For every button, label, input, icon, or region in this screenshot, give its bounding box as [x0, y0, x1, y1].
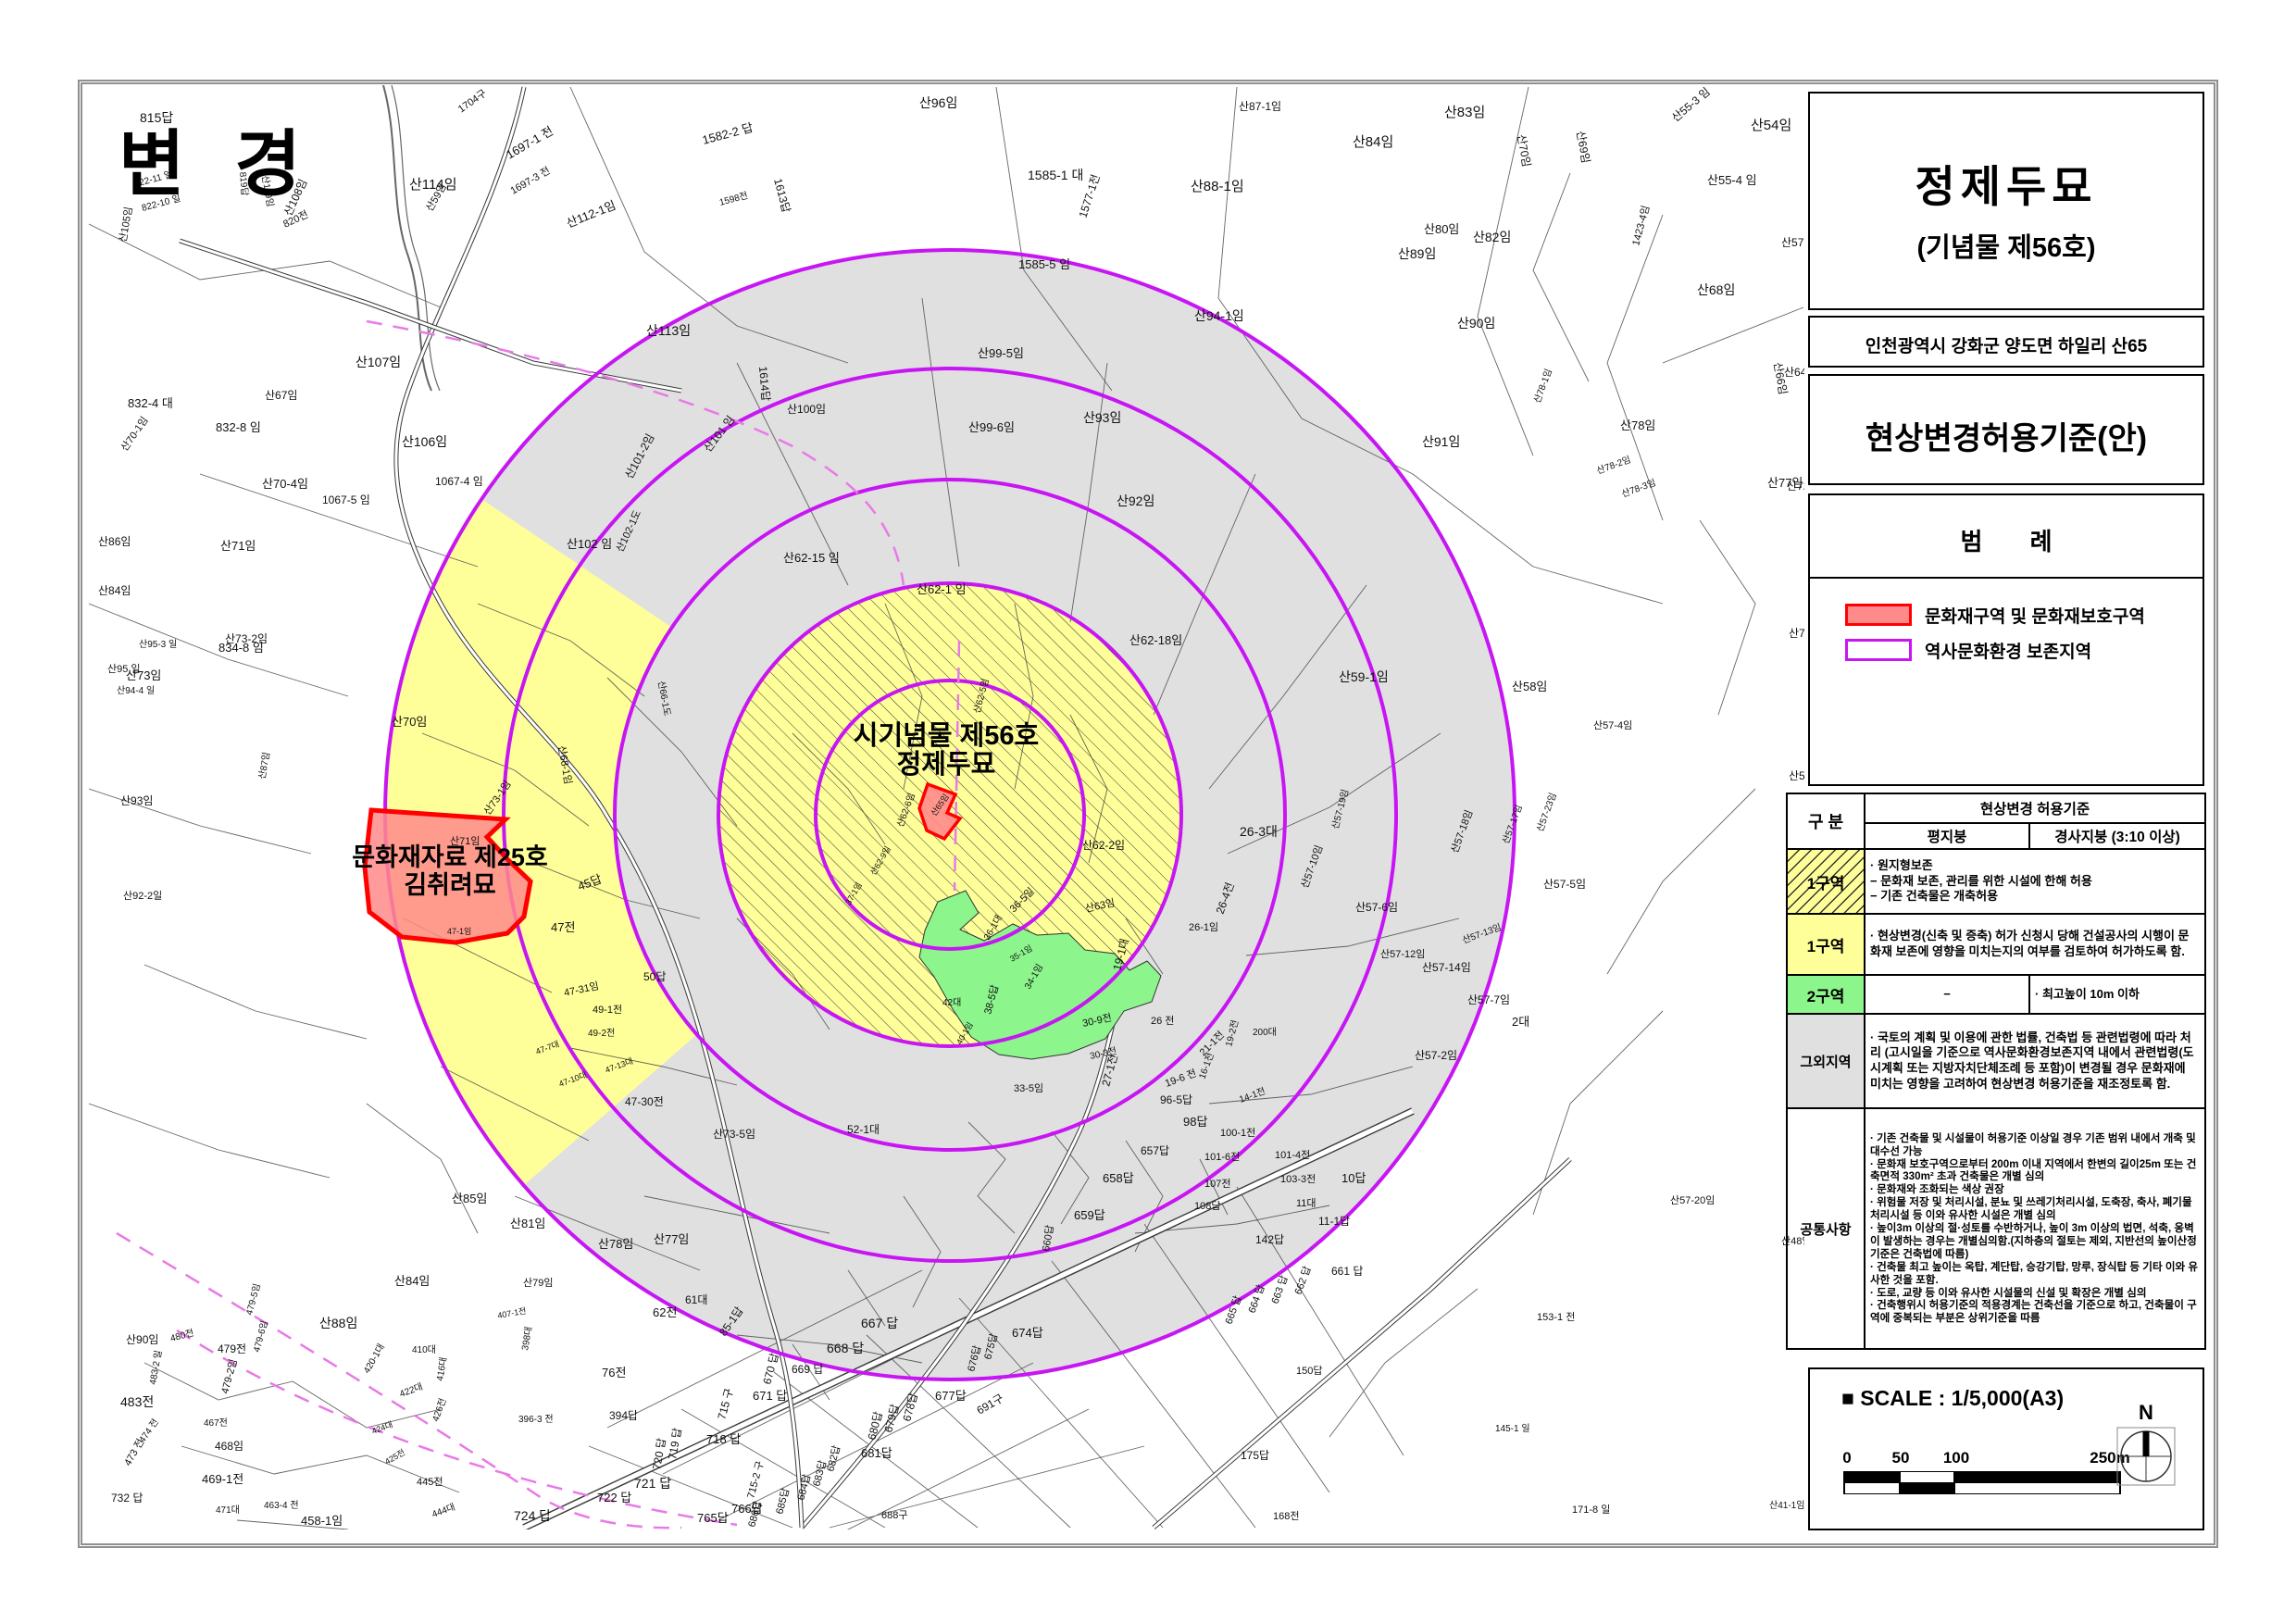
parcel-label: 산55-4 임	[1707, 173, 1757, 187]
page-subtitle: (기념물 제56호)	[1810, 226, 2202, 265]
parcel-label: 171-8 일	[1572, 1503, 1610, 1516]
parcel-label: 산85임	[452, 1192, 487, 1205]
parcel-label: 688구	[881, 1510, 907, 1521]
site-address: 인천광역시 강화군 양도면 하일리 산65	[1810, 332, 2202, 357]
parcel-label: 49-1전	[593, 1004, 622, 1016]
parcel-label: 26-1임	[1189, 921, 1218, 933]
scale-ticks: 0 50 100 250m	[1843, 1449, 2121, 1467]
parcel-label: 산106임	[402, 434, 447, 449]
parcel-label: 1704구	[456, 88, 489, 116]
criteria-cell: · 국토의 계획 및 이용에 관한 법률, 건축법 등 관련법령에 따라 처리 …	[1865, 1014, 2205, 1108]
parcel-label: 657답	[1141, 1144, 1169, 1157]
parcel-label: 산95-3 일	[139, 639, 177, 650]
parcel-label: 483전	[120, 1394, 154, 1409]
parcel-label: 산94-1임	[1194, 308, 1244, 323]
parcel-label: 715-2 구	[745, 1460, 766, 1500]
parcel-label: 산102 임	[567, 537, 612, 551]
info-panel: 정제두묘 (기념물 제56호) 인천광역시 강화군 양도면 하일리 산65 현상…	[1808, 85, 2204, 1531]
parcel-label: 396-3 전	[518, 1414, 554, 1425]
criteria-cell: · 현상변경(신축 및 증축) 허가 신청시 당해 건설공사의 시행이 문화재 …	[1865, 914, 2205, 975]
table-row-zone2: 2구역 − · 최고높이 10m 이하	[1787, 975, 2205, 1014]
parcel-label: 산70-4임	[262, 477, 308, 491]
parcel-label: 산105임	[117, 206, 135, 243]
parcel-label: 산96임	[919, 95, 957, 110]
parcel-label: 416대	[434, 1356, 449, 1382]
parcel-label: 659답	[1074, 1208, 1105, 1222]
parcel-label: 산78임	[598, 1237, 633, 1251]
parcel-label: 410대	[412, 1344, 436, 1355]
parcel-label: 61대	[685, 1293, 707, 1306]
parcel-label: 721 답	[634, 1476, 671, 1491]
parcel-label: 산99-5임	[978, 346, 1024, 360]
parcel-label: 산58임	[1512, 680, 1547, 693]
table-row-zone1: 1구역 · 현상변경(신축 및 증축) 허가 신청시 당해 건설공사의 시행이 …	[1787, 914, 2205, 975]
parcel-label: 1067-5 임	[322, 493, 370, 506]
parcel-label: 산54임	[1751, 118, 1791, 133]
parcel-label: 산62-15 임	[783, 551, 840, 565]
parcel-label: 산73-2임	[225, 632, 268, 645]
zone-cell: 2구역	[1787, 975, 1865, 1014]
parcel-label: 11-1답	[1318, 1215, 1350, 1228]
map-sheet: 815답822-11 일822-10 일819답820전산119임산59임산11…	[0, 0, 2296, 1623]
parcel-label: 1697-3 전	[508, 165, 553, 197]
parcel-label: 산57-23임	[1534, 791, 1559, 833]
parcel-label: 471대	[216, 1504, 240, 1516]
zone-cell: 그외지역	[1787, 1014, 1865, 1108]
parcel-label: 산82임	[1473, 230, 1511, 244]
parcel-label: 145-1 일	[1495, 1423, 1530, 1434]
parcel-label: 산92임	[1117, 493, 1154, 508]
parcel-label: 산88-1임	[1191, 179, 1244, 194]
col-header-flat-roof: 평지붕	[1865, 823, 2029, 849]
parcel-label: 107전	[1204, 1178, 1230, 1190]
parcel-label: 766답	[731, 1502, 763, 1516]
parcel-label: 산77임	[654, 1232, 689, 1246]
parcel-label: 산71임	[220, 539, 256, 553]
parcel-label: 671 답	[753, 1389, 787, 1403]
parcel-label: 산93임	[120, 794, 153, 807]
compass-rose-icon	[2116, 1427, 2176, 1486]
legend-item-heritage-zone: 문화재구역 및 문화재보호구역	[1845, 603, 2145, 627]
parcel-label: 산86임	[98, 535, 131, 548]
criteria-cell: · 원지형보존 − 문화재 보존, 관리를 위한 시설에 한해 허용 − 기존 …	[1865, 849, 2205, 914]
zone-cell: 1구역	[1787, 914, 1865, 975]
parcel-label: 산93임	[1083, 410, 1121, 425]
parcel-label: 469-1전	[202, 1472, 243, 1486]
cadastral-map: 815답822-11 일822-10 일819답820전산119임산59임산11…	[89, 85, 1804, 1529]
page-title: 정제두묘	[1810, 151, 2202, 215]
parcel-label: 산72임	[1787, 480, 1804, 493]
parcel-label: 산62-2임	[1082, 839, 1125, 852]
parcel-label: 445전	[417, 1476, 443, 1488]
scale-label: ■ SCALE : 1/5,000(A3)	[1841, 1386, 2064, 1411]
parcel-label: 667 답	[861, 1316, 898, 1330]
parcel-label: 479-6임	[250, 1319, 270, 1354]
parcel-label: 산78-2임	[1595, 453, 1633, 476]
parcel-label: 산55-3 임	[1669, 85, 1713, 124]
parcel-label: 670 답	[760, 1352, 780, 1386]
parcel-label: 691구	[975, 1392, 1006, 1417]
parcel-label: 산94-4 일	[117, 685, 155, 696]
parcel-label: 1067-4 임	[435, 475, 483, 488]
parcel-label: 1613답	[771, 177, 792, 214]
parcel-label: 산62-1 임	[917, 582, 967, 596]
legend-item-historic-environment: 역사문화환경 보존지역	[1845, 638, 2091, 662]
parcel-label: 산84임	[1353, 134, 1393, 150]
parcel-label: 720 답	[650, 1437, 668, 1470]
parcel-label: 산87-1임	[1239, 100, 1281, 113]
parcel-label: 산57-12임	[1380, 948, 1425, 960]
parcel-label: 산67임	[265, 389, 297, 402]
parcel-label: 444대	[430, 1502, 456, 1520]
parcel-label: 26 전	[1151, 1015, 1174, 1027]
compass: N	[2114, 1403, 2178, 1486]
parcel-label: 산57-5임	[1543, 878, 1586, 891]
parcel-label: 1582-2 답	[701, 120, 755, 147]
parcel-label: 422대	[398, 1381, 424, 1400]
table-row-zone1-hatched: 1구역 · 원지형보존 − 문화재 보존, 관리를 위한 시설에 한해 허용 −…	[1787, 849, 2205, 914]
parcel-label: 산62-18임	[1129, 633, 1182, 647]
parcel-label: 420-1대	[361, 1342, 387, 1375]
heritage-annotation: 문화재자료 제25호	[352, 843, 547, 871]
scale-box: ■ SCALE : 1/5,000(A3) 0 50 100 250m N	[1808, 1367, 2204, 1530]
parcel-label: 산89임	[1398, 246, 1436, 261]
parcel-label: 150답	[1296, 1365, 1322, 1377]
parcel-label: 42대	[942, 997, 961, 1008]
parcel-label: 1423-4임	[1629, 205, 1652, 247]
parcel-label: 153-1 전	[1537, 1311, 1575, 1323]
parcel-label: 732 답	[111, 1492, 143, 1504]
parcel-label: 산84임	[394, 1274, 430, 1288]
criteria-cell: · 기존 건축물 및 시설물이 허용기준 이상일 경우 기존 범위 내에서 개축…	[1865, 1108, 2205, 1349]
parcel-label: 산70임	[392, 715, 427, 729]
address-box: 인천광역시 강화군 양도면 하일리 산65	[1808, 316, 2204, 368]
parcel-label: 479전	[218, 1342, 246, 1355]
title-box: 정제두묘 (기념물 제56호)	[1808, 92, 2204, 310]
parcel-label: 103-3전	[1280, 1173, 1316, 1185]
parcel-label: 1598전	[718, 190, 749, 208]
parcel-label: 669 답	[792, 1363, 823, 1376]
parcel-label: 26-3대	[1240, 824, 1278, 839]
heritage-annotation: 시기념물 제56호	[854, 720, 1039, 751]
parcel-label: 산95 일	[107, 662, 141, 675]
scale-tick: 100	[1943, 1449, 1969, 1467]
criteria-table: 구 분 현상변경 허용기준 평지붕 경사지붕 (3:10 이상) 1구역 · 원…	[1786, 793, 2206, 1350]
legend-swatch-purple	[1845, 639, 1912, 661]
parcel-label: 661 답	[1331, 1265, 1363, 1278]
parcel-label: 산73-5임	[713, 1128, 755, 1141]
parcel-label: 산84임	[98, 584, 131, 597]
parcel-label: 724 답	[514, 1508, 551, 1523]
map-canvas: 815답822-11 일822-10 일819답820전산119임산59임산11…	[89, 85, 1804, 1529]
parcel-label: 산90임	[126, 1333, 158, 1346]
parcel-label: 467전	[204, 1417, 228, 1429]
parcel-label: 468임	[215, 1440, 243, 1453]
parcel-label: 765답	[697, 1511, 729, 1525]
parcel-label: 832-4 대	[128, 396, 173, 410]
parcel-label: 479-2임	[218, 1357, 239, 1394]
scale-tick: 0	[1842, 1449, 1851, 1467]
parcel-label: 산41-1임	[1769, 1499, 1804, 1511]
parcel-label: 산57-4임	[1593, 719, 1632, 731]
parcel-label: 산91임	[1422, 434, 1460, 449]
parcel-label: 산114임	[409, 177, 457, 193]
parcel-label: 394답	[609, 1409, 638, 1422]
parcel-label: 산59-1임	[1339, 669, 1389, 684]
parcel-label: 산68임	[1697, 282, 1735, 297]
parcel-label: 658답	[1103, 1171, 1134, 1185]
parcel-label: 722 답	[597, 1491, 631, 1504]
parcel-label: 11대	[1296, 1197, 1316, 1209]
parcel-label: 96-5답	[1160, 1093, 1192, 1106]
parcel-label: 108답	[1194, 1200, 1220, 1212]
parcel-label: 76전	[602, 1366, 626, 1380]
parcel-label: 100-1전	[1220, 1127, 1255, 1139]
parcel-label: 산70임	[1515, 133, 1533, 168]
parcel-label: 1585-5 임	[1018, 257, 1070, 271]
parcel-label: 산56임	[1789, 769, 1804, 782]
parcel-label: 49-2전	[588, 1028, 615, 1039]
parcel-label: 산113임	[646, 323, 691, 338]
parcel-label: 산88임	[319, 1316, 357, 1330]
parcel-label: 산70-1임	[119, 415, 151, 454]
parcel-label: 168전	[1273, 1510, 1299, 1522]
parcel-label: 산57-2임	[1415, 1049, 1457, 1062]
parcel-label: 1585-1 대	[1028, 168, 1083, 182]
parcel-label: 52-1대	[847, 1123, 880, 1136]
parcel-label: 677답	[935, 1389, 967, 1403]
legend-box: 범 례 문화재구역 및 문화재보호구역 역사문화환경 보존지역	[1808, 493, 2204, 786]
parcel-label: 718 답	[706, 1432, 741, 1446]
parcel-label: 산100임	[787, 403, 826, 416]
parcel-label: 산78-1임	[1531, 367, 1554, 405]
scale-bar	[1843, 1471, 2121, 1494]
parcel-label: 산83임	[1444, 105, 1485, 120]
parcel-label: 산64임	[1784, 366, 1804, 379]
parcel-label: 47전	[551, 920, 575, 934]
parcel-label: 산57임	[1781, 236, 1804, 249]
parcel-label: 산57-6임	[1355, 901, 1398, 914]
parcel-label: 479-5임	[243, 1282, 263, 1317]
heritage-annotation: 김취려묘	[404, 871, 495, 899]
criteria-cell-slope: · 최고높이 10m 이하	[2029, 975, 2205, 1014]
parcel-label: 674답	[1012, 1326, 1043, 1340]
parcel-label: 산80임	[1424, 222, 1459, 236]
parcel-label: 산112-1임	[565, 198, 618, 231]
table-row-common: 공통사항 · 기존 건축물 및 시설물이 허용기준 이상일 경우 기존 범위 내…	[1787, 1108, 2205, 1349]
parcel-label: 832-8 임	[216, 420, 261, 434]
parcel-label: 668 답	[827, 1341, 864, 1355]
col-header-sloped-roof: 경사지붕 (3:10 이상)	[2029, 823, 2205, 849]
parcel-label: 458-1임	[301, 1514, 343, 1528]
change-stamp: 변 경	[119, 128, 316, 200]
parcel-label: 산87임	[256, 751, 272, 780]
col-header-zone: 구 분	[1787, 793, 1865, 849]
parcel-label: 산92-2일	[123, 889, 162, 902]
legend-label: 문화재구역 및 문화재보호구역	[1925, 603, 2145, 628]
parcel-label: 715 구	[715, 1387, 735, 1421]
parcel-label: 50답	[643, 970, 666, 983]
stream	[392, 85, 440, 391]
parcel-label: 산69임	[1574, 130, 1592, 164]
parcel-label: 산81임	[510, 1217, 545, 1230]
parcel-label: 산107임	[356, 355, 401, 369]
legend-title: 범 례	[1810, 523, 2202, 557]
parcel-label: 480전	[169, 1328, 195, 1344]
parcel-label: 산78-3임	[1620, 476, 1658, 499]
parcel-label: 산57-7임	[1467, 993, 1510, 1006]
parcel-label: 681답	[861, 1446, 892, 1460]
zone-cell: 1구역	[1787, 849, 1865, 914]
parcel-label: 407-1전	[497, 1306, 528, 1320]
parcel-label: 산74임	[1789, 627, 1804, 640]
parcel-label: 산78임	[1620, 418, 1655, 432]
criteria-cell-flat: −	[1865, 975, 2029, 1014]
parcel-label: 101-4전	[1275, 1149, 1310, 1161]
parcel-label: 679답	[881, 1403, 902, 1434]
parcel-label: 101-6전	[1204, 1151, 1240, 1163]
legend-swatch-red	[1845, 604, 1912, 626]
scale-tick: 50	[1892, 1449, 1910, 1467]
parcel-label: 98답	[1183, 1115, 1207, 1129]
parcel-label: 산79임	[523, 1277, 553, 1289]
parcel-label: 47-30전	[625, 1095, 664, 1108]
parcel-label: 10답	[1341, 1171, 1366, 1185]
parcel-label: 47-1임	[447, 926, 471, 936]
legend-label: 역사문화환경 보존지역	[1925, 638, 2091, 663]
parcel-label: 474 전	[137, 1417, 161, 1444]
criteria-title: 현상변경허용기준(안)	[1810, 413, 2202, 458]
parcel-label: 678답	[900, 1392, 920, 1423]
col-header-group: 현상변경 허용기준	[1865, 793, 2205, 823]
parcel-label: 산57-20임	[1670, 1194, 1715, 1206]
parcel-label: 62전	[653, 1305, 677, 1319]
parcel-label: 200대	[1253, 1027, 1277, 1038]
compass-north-label: N	[2114, 1403, 2178, 1423]
parcel-label: 산57-14임	[1422, 961, 1471, 974]
parcel-label: 175답	[1241, 1449, 1269, 1462]
parcel-label: 463-4 전	[264, 1500, 299, 1511]
parcel-label: 산90임	[1457, 316, 1495, 331]
parcel-label: 산99-6임	[968, 420, 1015, 434]
legend-separator	[1810, 577, 2202, 579]
parcel-label: 426전	[430, 1397, 449, 1423]
heritage-annotation: 정제두묘	[897, 749, 996, 780]
parcel-label: 33-5임	[1014, 1082, 1043, 1094]
parcel-label: 2대	[1512, 1015, 1529, 1029]
criteria-title-box: 현상변경허용기준(안)	[1808, 374, 2204, 485]
parcel-label: 142답	[1255, 1233, 1284, 1246]
table-row-other-area: 그외지역 · 국토의 계획 및 이용에 관한 법률, 건축법 등 관련법령에 따…	[1787, 1014, 2205, 1108]
parcel-label: 398대	[519, 1326, 534, 1352]
parcel-label: 680답	[865, 1410, 885, 1442]
zone-cell: 공통사항	[1787, 1108, 1865, 1349]
parcel-label: 425전	[383, 1447, 406, 1466]
parcel-label: 483-2 일	[147, 1349, 164, 1385]
